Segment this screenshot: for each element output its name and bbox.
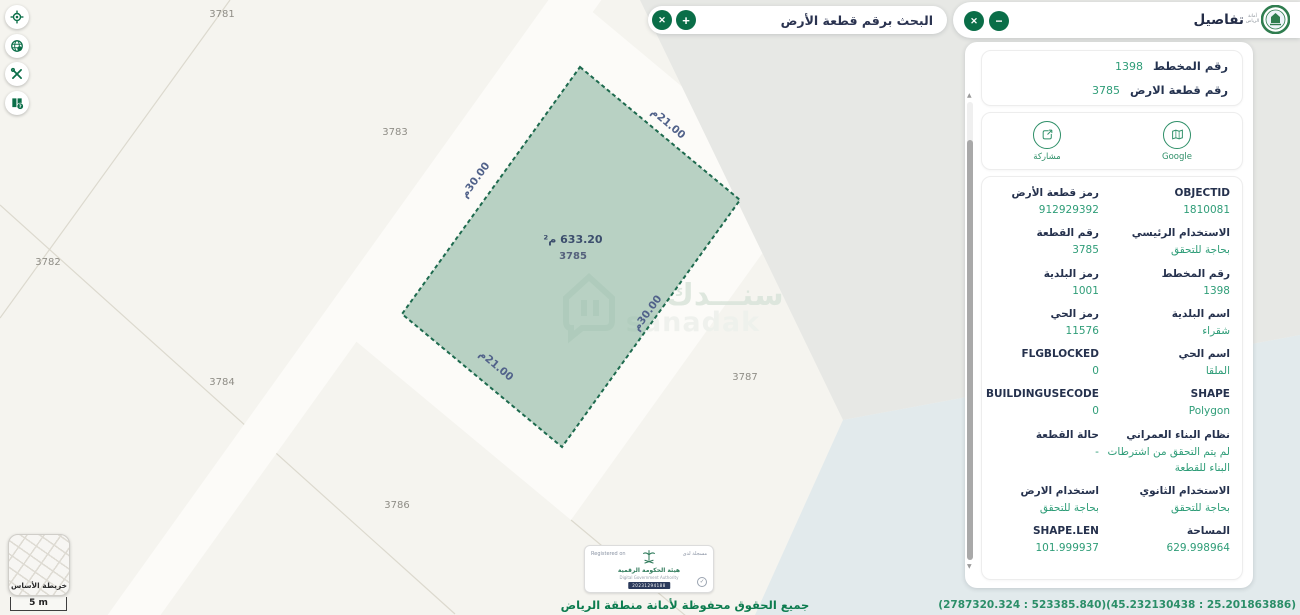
basemap-switcher[interactable]: خريطة الأساس (8, 534, 70, 596)
field-label: استخدام الارض (988, 485, 1099, 497)
field-label: الاستخدام الثانوي (1105, 485, 1230, 497)
amanah-brand-text: أمانة الرياض (1245, 14, 1260, 25)
attribute-field: الاستخدام الرئيسيبحاجة للتحقق (1105, 227, 1230, 258)
attribute-field: اسم الحيالملقا (1105, 348, 1230, 379)
share-icon (1033, 121, 1061, 149)
dga-registration-badge: Registered on مسجلة لدى هيئة الحكومة الر… (584, 545, 714, 593)
field-value: لم يتم التحقق من اشترطات البناء للقطعة (1105, 444, 1230, 477)
registration-number: 20231294188 (628, 582, 670, 589)
tools-icon (10, 67, 24, 81)
google-maps-icon (1163, 121, 1191, 149)
details-title: تفاصيل (1194, 12, 1244, 28)
parcel-number: 3786 (384, 500, 409, 511)
field-value: 1810081 (1105, 202, 1230, 218)
parcel-search-bar[interactable]: ✕ + البحث برقم قطعة الأرض (648, 6, 947, 34)
share-label: مشاركة (1033, 152, 1060, 162)
parcel-number: 3783 (382, 127, 407, 138)
google-maps-button[interactable]: Google (1112, 121, 1242, 162)
actions-card: Google مشاركة (981, 112, 1243, 170)
details-minimize-button[interactable]: − (989, 11, 1009, 31)
summary-row: رقم قطعة الارض 3785 (996, 83, 1228, 97)
summary-value: 1398 (1115, 60, 1143, 73)
field-value: 3785 (988, 242, 1099, 258)
field-label: BUILDINGUSECODE (988, 388, 1099, 400)
field-label: حالة القطعة (988, 429, 1099, 441)
attribute-field: الاستخدام الثانويبحاجة للتحقق (1105, 485, 1230, 516)
field-value: Polygon (1105, 403, 1230, 419)
field-label: رمز الحي (988, 308, 1099, 320)
attribute-field: رمز البلدية1001 (988, 268, 1099, 299)
parcel-number: 3781 (209, 9, 234, 20)
registered-on-text: Registered on (591, 551, 626, 557)
field-value: 912929392 (988, 202, 1099, 218)
selected-parcel-area: ‏633.20 م² (543, 233, 603, 246)
google-maps-label: Google (1162, 152, 1192, 162)
field-label: رقم المخطط (1105, 268, 1230, 280)
basemap-globe-button[interactable] (5, 34, 29, 58)
field-label: FLGBLOCKED (988, 348, 1099, 360)
search-close-button[interactable]: ✕ (652, 10, 672, 30)
scroll-down-arrow[interactable]: ▼ (967, 563, 972, 570)
help-book-icon: ? (10, 96, 24, 110)
cursor-coordinates: (2787320.324 : 523385.840)(45.232130438 … (938, 599, 1296, 611)
search-label: البحث برقم قطعة الأرض (696, 13, 943, 28)
field-label: SHAPE.LEN (988, 525, 1099, 537)
amanah-logo (1261, 5, 1290, 38)
field-value: 629.998964 (1105, 540, 1230, 556)
field-label: نظام البناء العمراني (1105, 429, 1230, 441)
registered-on-arabic-text: مسجلة لدى (683, 551, 707, 557)
details-scrollbar[interactable] (967, 102, 973, 558)
field-value: شقراء (1105, 323, 1230, 339)
amanah-logo-icon (1261, 5, 1290, 34)
locate-button[interactable] (5, 5, 29, 29)
parcel-number: 3784 (209, 377, 234, 388)
attribute-field: المساحة629.998964 (1105, 525, 1230, 556)
field-label: اسم البلدية (1105, 308, 1230, 320)
attributes-grid: OBJECTID1810081رمز قطعة الأرض912929392ال… (994, 187, 1230, 557)
svg-text:?: ? (19, 103, 22, 109)
copyright-text: جميع الحقوق محفوظة لأمانة منطقة الرياض (555, 598, 815, 612)
field-value: 0 (988, 403, 1099, 419)
verified-check-icon: ✓ (697, 577, 707, 587)
attribute-field: رقم المخطط1398 (1105, 268, 1230, 299)
field-value: بحاجة للتحقق (1105, 242, 1230, 258)
field-value: 11576 (988, 323, 1099, 339)
search-expand-button[interactable]: + (676, 10, 696, 30)
selected-parcel-number: 3785 (559, 251, 587, 262)
attribute-field: رمز قطعة الأرض912929392 (988, 187, 1099, 218)
field-value: بحاجة للتحقق (988, 500, 1099, 516)
attribute-field: FLGBLOCKED0 (988, 348, 1099, 379)
field-value: 1001 (988, 283, 1099, 299)
summary-value: 3785 (1092, 84, 1120, 97)
field-value: 0 (988, 363, 1099, 379)
summary-label: رقم قطعة الارض (1130, 83, 1228, 97)
field-value: الملقا (1105, 363, 1230, 379)
attribute-field: رمز الحي11576 (988, 308, 1099, 339)
scale-label: 5 m (29, 598, 48, 608)
attribute-field: استخدام الارضبحاجة للتحقق (988, 485, 1099, 516)
parcel-number: 3782 (35, 257, 60, 268)
attribute-field: SHAPE.LEN101.999937 (988, 525, 1099, 556)
summary-row: رقم المخطط 1398 (996, 59, 1228, 73)
summary-label: رقم المخطط (1153, 59, 1228, 73)
field-label: الاستخدام الرئيسي (1105, 227, 1230, 239)
scroll-up-arrow[interactable]: ▲ (967, 92, 972, 99)
tools-button[interactable] (5, 62, 29, 86)
attribute-field: رقم القطعة3785 (988, 227, 1099, 258)
scale-bar: 5 m (10, 597, 67, 611)
field-label: رمز قطعة الأرض (988, 187, 1099, 199)
globe-icon (10, 39, 24, 53)
parcel-number: 3787 (732, 372, 757, 383)
field-label: رقم القطعة (988, 227, 1099, 239)
field-label: رمز البلدية (988, 268, 1099, 280)
app-window: سنـــدك sanadak 3781 3783 3782 3784 3786… (0, 0, 1300, 615)
details-panel: ▲ ▼ رقم المخطط 1398 رقم قطعة الارض 3785 (965, 42, 1253, 588)
field-label: OBJECTID (1105, 187, 1230, 199)
field-label: المساحة (1105, 525, 1230, 537)
attributes-card: OBJECTID1810081رمز قطعة الأرض912929392ال… (981, 176, 1243, 580)
dga-name-english: Digital Government Authority (585, 575, 713, 580)
field-value: 101.999937 (988, 540, 1099, 556)
attribute-field: نظام البناء العمرانيلم يتم التحقق من اشت… (1105, 429, 1230, 477)
attribute-field: SHAPEPolygon (1105, 388, 1230, 419)
summary-card: رقم المخطط 1398 رقم قطعة الارض 3785 (981, 50, 1243, 106)
scrollbar-thumb[interactable] (967, 140, 973, 560)
attribute-field: حالة القطعة- (988, 429, 1099, 477)
dga-name-arabic: هيئة الحكومة الرقمية (585, 567, 713, 574)
locate-icon (10, 10, 24, 24)
field-value: - (988, 444, 1099, 460)
basemap-label: خريطة الأساس (9, 581, 69, 590)
help-guide-button[interactable]: ? (5, 91, 29, 115)
field-value: 1398 (1105, 283, 1230, 299)
field-label: SHAPE (1105, 388, 1230, 400)
field-value: بحاجة للتحقق (1105, 500, 1230, 516)
attribute-field: اسم البلديةشقراء (1105, 308, 1230, 339)
attribute-field: OBJECTID1810081 (1105, 187, 1230, 218)
attribute-field: BUILDINGUSECODE0 (988, 388, 1099, 419)
details-header: ✕ − تفاصيل أمانة الرياض (953, 2, 1300, 38)
field-label: اسم الحي (1105, 348, 1230, 360)
details-close-button[interactable]: ✕ (964, 11, 984, 31)
share-button[interactable]: مشاركة (982, 121, 1112, 162)
